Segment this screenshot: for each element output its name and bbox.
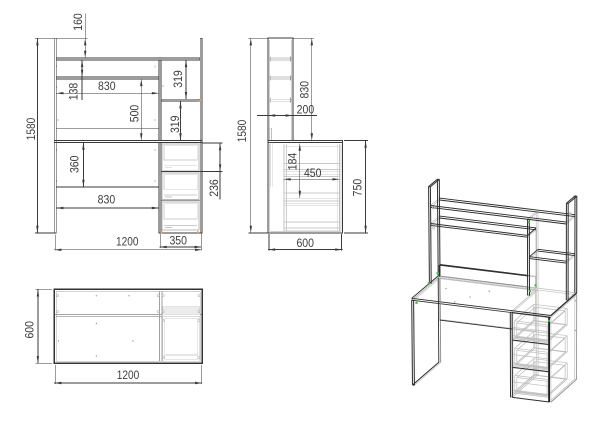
svg-text:360: 360	[69, 156, 81, 174]
svg-text:830: 830	[98, 195, 116, 207]
svg-text:1580: 1580	[237, 120, 249, 143]
svg-text:830: 830	[98, 81, 116, 93]
svg-text:160: 160	[73, 13, 85, 31]
svg-text:350: 350	[169, 235, 187, 247]
svg-text:184: 184	[287, 152, 299, 170]
svg-text:1200: 1200	[117, 370, 140, 382]
svg-text:500: 500	[130, 105, 142, 123]
svg-text:450: 450	[304, 168, 322, 180]
svg-text:750: 750	[352, 179, 364, 197]
svg-text:319: 319	[170, 116, 182, 134]
svg-text:600: 600	[296, 238, 314, 250]
svg-text:319: 319	[173, 70, 185, 88]
svg-text:236: 236	[209, 179, 221, 197]
svg-text:200: 200	[297, 104, 315, 116]
svg-text:830: 830	[299, 81, 311, 99]
svg-text:138: 138	[69, 83, 81, 101]
svg-text:600: 600	[24, 321, 36, 339]
svg-text:1580: 1580	[26, 118, 38, 141]
svg-text:1200: 1200	[116, 237, 139, 249]
